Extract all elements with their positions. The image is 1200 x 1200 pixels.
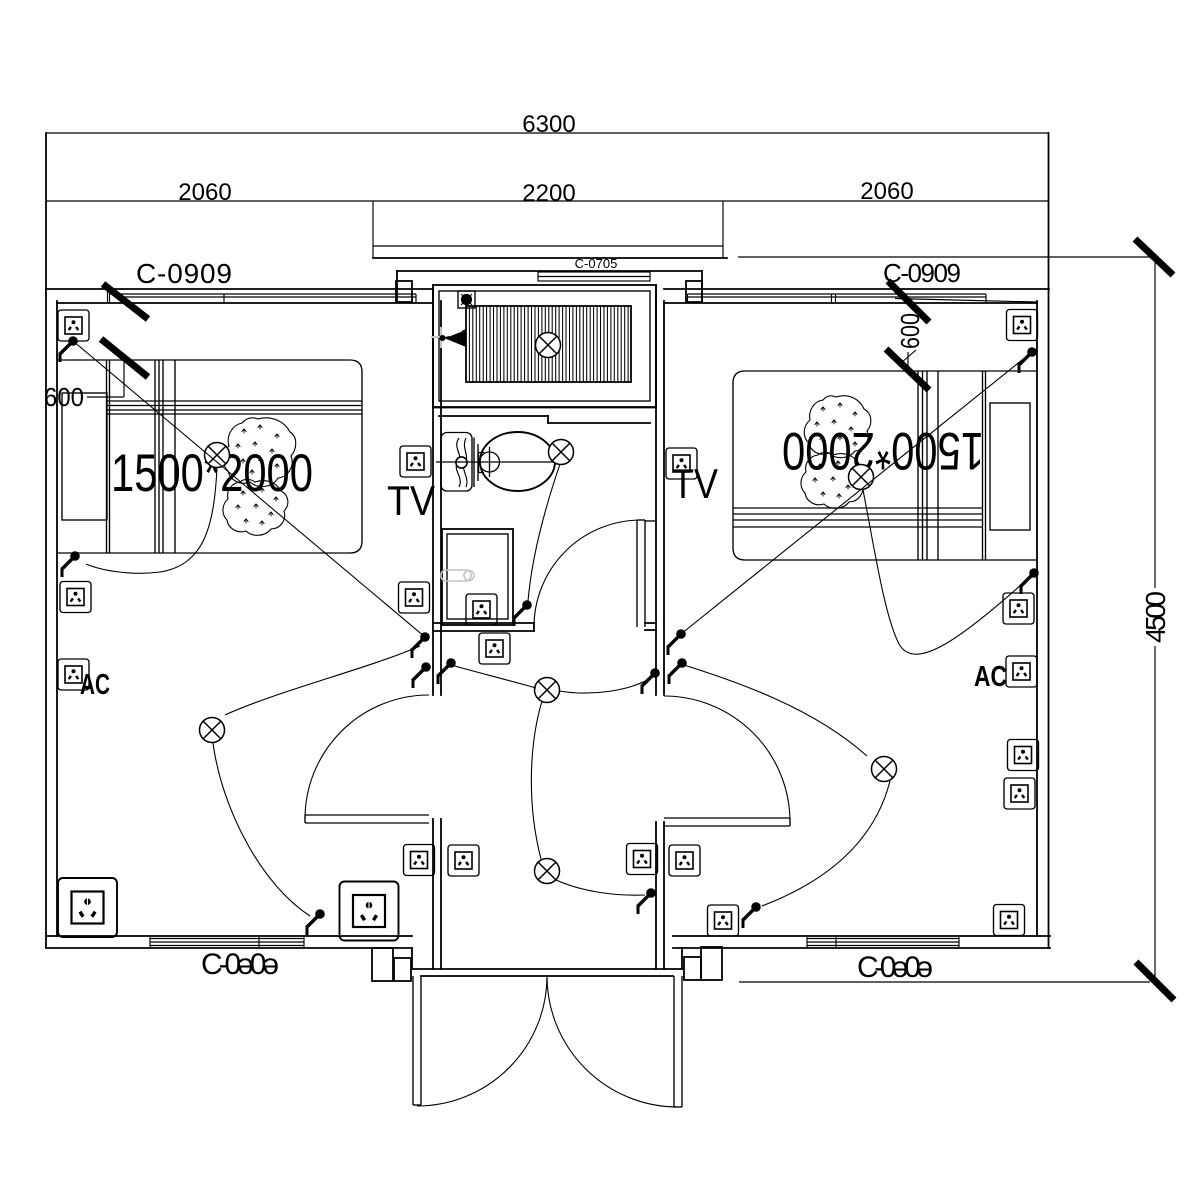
svg-text:TV: TV bbox=[387, 477, 435, 524]
svg-text:4500: 4500 bbox=[1140, 591, 1171, 643]
svg-text:C-0705: C-0705 bbox=[575, 256, 618, 271]
svg-text:2060: 2060 bbox=[860, 178, 913, 205]
svg-text:2200: 2200 bbox=[522, 180, 575, 207]
svg-text:6300: 6300 bbox=[522, 111, 575, 138]
svg-text:AC: AC bbox=[974, 661, 1007, 693]
svg-text:600: 600 bbox=[44, 382, 84, 412]
svg-text:C-0ə0ə: C-0ə0ə bbox=[201, 948, 279, 981]
svg-text:C-0ə0ə: C-0ə0ə bbox=[857, 951, 933, 984]
svg-text:C-0909: C-0909 bbox=[136, 258, 232, 289]
svg-text:2060: 2060 bbox=[178, 179, 231, 206]
svg-text:TV: TV bbox=[672, 460, 718, 507]
svg-text:AC: AC bbox=[80, 669, 110, 701]
